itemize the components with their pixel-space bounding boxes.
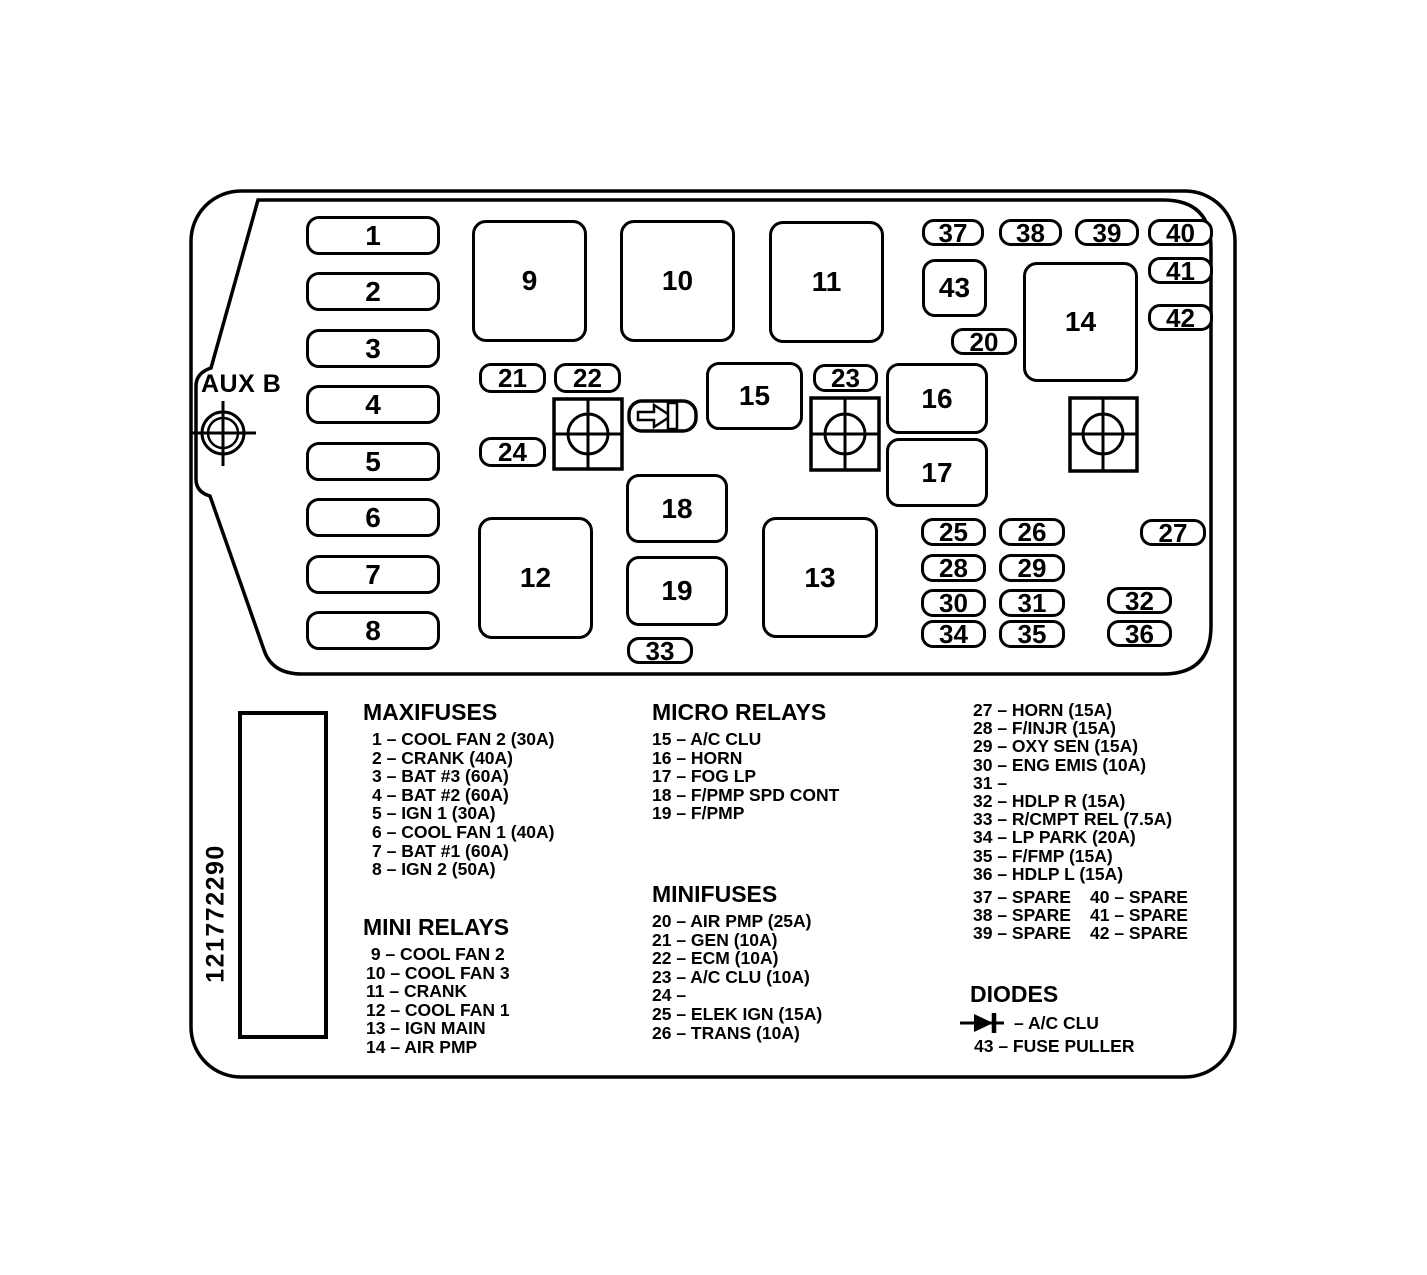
micro-relay-15: 15 [706, 362, 803, 430]
legend-item: 11 – CRANK [366, 982, 510, 1001]
ac-clu-diode [629, 401, 696, 431]
fuse-puller-43: 43 [922, 259, 987, 317]
minifuse-23: 23 [813, 364, 878, 392]
legend-mini-relays: MINI RELAYS 9 – COOL FAN 2 10 – COOL FAN… [363, 914, 510, 1057]
legend-diodes-title: DIODES [970, 981, 1134, 1007]
legend-item: 43 – FUSE PULLER [974, 1037, 1134, 1056]
mini-relay-12: 12 [478, 517, 593, 639]
legend-item: 42 – SPARE [1090, 924, 1188, 942]
legend-item: 19 – F/PMP [652, 804, 839, 823]
legend-spare-row: 39 – SPARE 42 – SPARE [973, 924, 1188, 942]
legend-item: 7 – BAT #1 (60A) [372, 842, 555, 861]
minifuse-31: 31 [999, 589, 1065, 617]
legend-item: 9 – COOL FAN 2 [366, 945, 510, 964]
micro-relay-19: 19 [626, 556, 728, 626]
mount-hole-icon-left [554, 399, 622, 469]
maxifuse-1: 1 [306, 216, 440, 255]
legend-item: 26 – TRANS (10A) [652, 1024, 822, 1043]
legend-item: 14 – AIR PMP [366, 1038, 510, 1057]
diode-icon [960, 1011, 1010, 1035]
fuse-box-outline-art [0, 0, 1427, 1275]
legend-maxifuses-title: MAXIFUSES [363, 699, 555, 725]
mini-relay-9: 9 [472, 220, 587, 342]
legend-item: 35 – F/FMP (15A) [973, 847, 1188, 865]
legend-item: 5 – IGN 1 (30A) [372, 804, 555, 823]
legend-item: 10 – COOL FAN 3 [366, 964, 510, 983]
minifuse-27: 27 [1140, 519, 1206, 546]
minifuse-40: 40 [1148, 219, 1213, 246]
legend-minifuses-title: MINIFUSES [652, 881, 822, 907]
minifuse-34: 34 [921, 620, 986, 648]
mount-hole-icon-right [1070, 398, 1137, 471]
legend-item: 37 – SPARE [973, 888, 1090, 906]
maxifuse-3: 3 [306, 329, 440, 368]
legend-item: 6 – COOL FAN 1 (40A) [372, 823, 555, 842]
legend-item: 1 – COOL FAN 2 (30A) [372, 730, 555, 749]
legend-item: 30 – ENG EMIS (10A) [973, 756, 1188, 774]
minifuse-20: 20 [951, 328, 1017, 355]
legend-spare-row: 37 – SPARE 40 – SPARE [973, 888, 1188, 906]
minifuse-22: 22 [554, 363, 621, 393]
legend-micro-relays-title: MICRO RELAYS [652, 699, 839, 725]
legend-item: 39 – SPARE [973, 924, 1090, 942]
minifuse-38: 38 [999, 219, 1062, 246]
legend-item: 12 – COOL FAN 1 [366, 1001, 510, 1020]
minifuse-42: 42 [1148, 304, 1213, 331]
legend-item: 27 – HORN (15A) [973, 701, 1188, 719]
legend-item: 32 – HDLP R (15A) [973, 792, 1188, 810]
minifuse-39: 39 [1075, 219, 1139, 246]
minifuse-37: 37 [922, 219, 984, 246]
legend-item: 15 – A/C CLU [652, 730, 839, 749]
legend-item: 17 – FOG LP [652, 767, 839, 786]
diode-icon [638, 405, 671, 427]
legend-item: 29 – OXY SEN (15A) [973, 737, 1188, 755]
minifuse-30: 30 [921, 589, 986, 617]
minifuse-24: 24 [479, 437, 546, 467]
minifuse-28: 28 [921, 554, 986, 582]
legend-item: 40 – SPARE [1090, 888, 1188, 906]
maxifuse-6: 6 [306, 498, 440, 537]
legend-item: 31 – [973, 774, 1188, 792]
mini-relay-14: 14 [1023, 262, 1138, 382]
legend-item: 33 – R/CMPT REL (7.5A) [973, 810, 1188, 828]
legend-item: 38 – SPARE [973, 906, 1090, 924]
aux-b-label: AUX B [201, 370, 281, 399]
legend-item: 24 – [652, 986, 822, 1005]
micro-relay-18: 18 [626, 474, 728, 543]
legend-item: 18 – F/PMP SPD CONT [652, 786, 839, 805]
micro-relay-17: 17 [886, 438, 988, 507]
maxifuse-5: 5 [306, 442, 440, 481]
legend-item: 28 – F/INJR (15A) [973, 719, 1188, 737]
legend-item: 8 – IGN 2 (50A) [372, 860, 555, 879]
minifuse-33: 33 [627, 637, 693, 664]
legend-item: 21 – GEN (10A) [652, 931, 822, 950]
legend-spare-row: 38 – SPARE 41 – SPARE [973, 906, 1188, 924]
legend-item: 16 – HORN [652, 749, 839, 768]
connector-blank-rect [240, 713, 326, 1037]
maxifuse-4: 4 [306, 385, 440, 424]
legend-minifuses: MINIFUSES 20 – AIR PMP (25A) 21 – GEN (1… [652, 881, 822, 1042]
legend-item: 25 – ELEK IGN (15A) [652, 1005, 822, 1024]
maxifuse-2: 2 [306, 272, 440, 311]
legend-item: 20 – AIR PMP (25A) [652, 912, 822, 931]
mount-hole-icon-middle [811, 398, 879, 470]
aux-b-mount-icon [192, 401, 256, 466]
legend-item: 34 – LP PARK (20A) [973, 828, 1188, 846]
minifuse-26: 26 [999, 518, 1065, 546]
maxifuse-8: 8 [306, 611, 440, 650]
legend-item: – A/C CLU [1014, 1014, 1099, 1033]
minifuse-41: 41 [1148, 257, 1213, 284]
legend-micro-relays: MICRO RELAYS 15 – A/C CLU 16 – HORN 17 –… [652, 699, 839, 823]
legend-item: 13 – IGN MAIN [366, 1019, 510, 1038]
mini-relay-10: 10 [620, 220, 735, 342]
minifuse-21: 21 [479, 363, 546, 393]
legend-item: 41 – SPARE [1090, 906, 1188, 924]
legend-diode-row: – A/C CLU [960, 1012, 1134, 1034]
minifuse-36: 36 [1107, 620, 1172, 647]
minifuse-25: 25 [921, 518, 986, 546]
micro-relay-16: 16 [886, 363, 988, 434]
legend-minifuses-continued: 27 – HORN (15A) 28 – F/INJR (15A) 29 – O… [973, 701, 1188, 943]
underhood-fuse-box-diagram: AUX B 121772290 1 2 3 4 5 6 7 8 9 10 11 … [0, 0, 1427, 1275]
mini-relay-11: 11 [769, 221, 884, 343]
legend-item: 23 – A/C CLU (10A) [652, 968, 822, 987]
legend-maxifuses: MAXIFUSES 1 – COOL FAN 2 (30A) 2 – CRANK… [363, 699, 555, 879]
legend-diodes: DIODES – A/C CLU 43 – FUSE PULLER [960, 981, 1134, 1056]
minifuse-32: 32 [1107, 587, 1172, 614]
diode-bar-icon [668, 403, 677, 429]
minifuse-29: 29 [999, 554, 1065, 582]
minifuse-35: 35 [999, 620, 1065, 648]
legend-item: 3 – BAT #3 (60A) [372, 767, 555, 786]
legend-item: 4 – BAT #2 (60A) [372, 786, 555, 805]
legend-item: 36 – HDLP L (15A) [973, 865, 1188, 883]
legend-item: 22 – ECM (10A) [652, 949, 822, 968]
part-number: 121772290 [202, 802, 231, 1026]
mini-relay-13: 13 [762, 517, 878, 638]
legend-item: 2 – CRANK (40A) [372, 749, 555, 768]
maxifuse-7: 7 [306, 555, 440, 594]
legend-mini-relays-title: MINI RELAYS [363, 914, 510, 940]
